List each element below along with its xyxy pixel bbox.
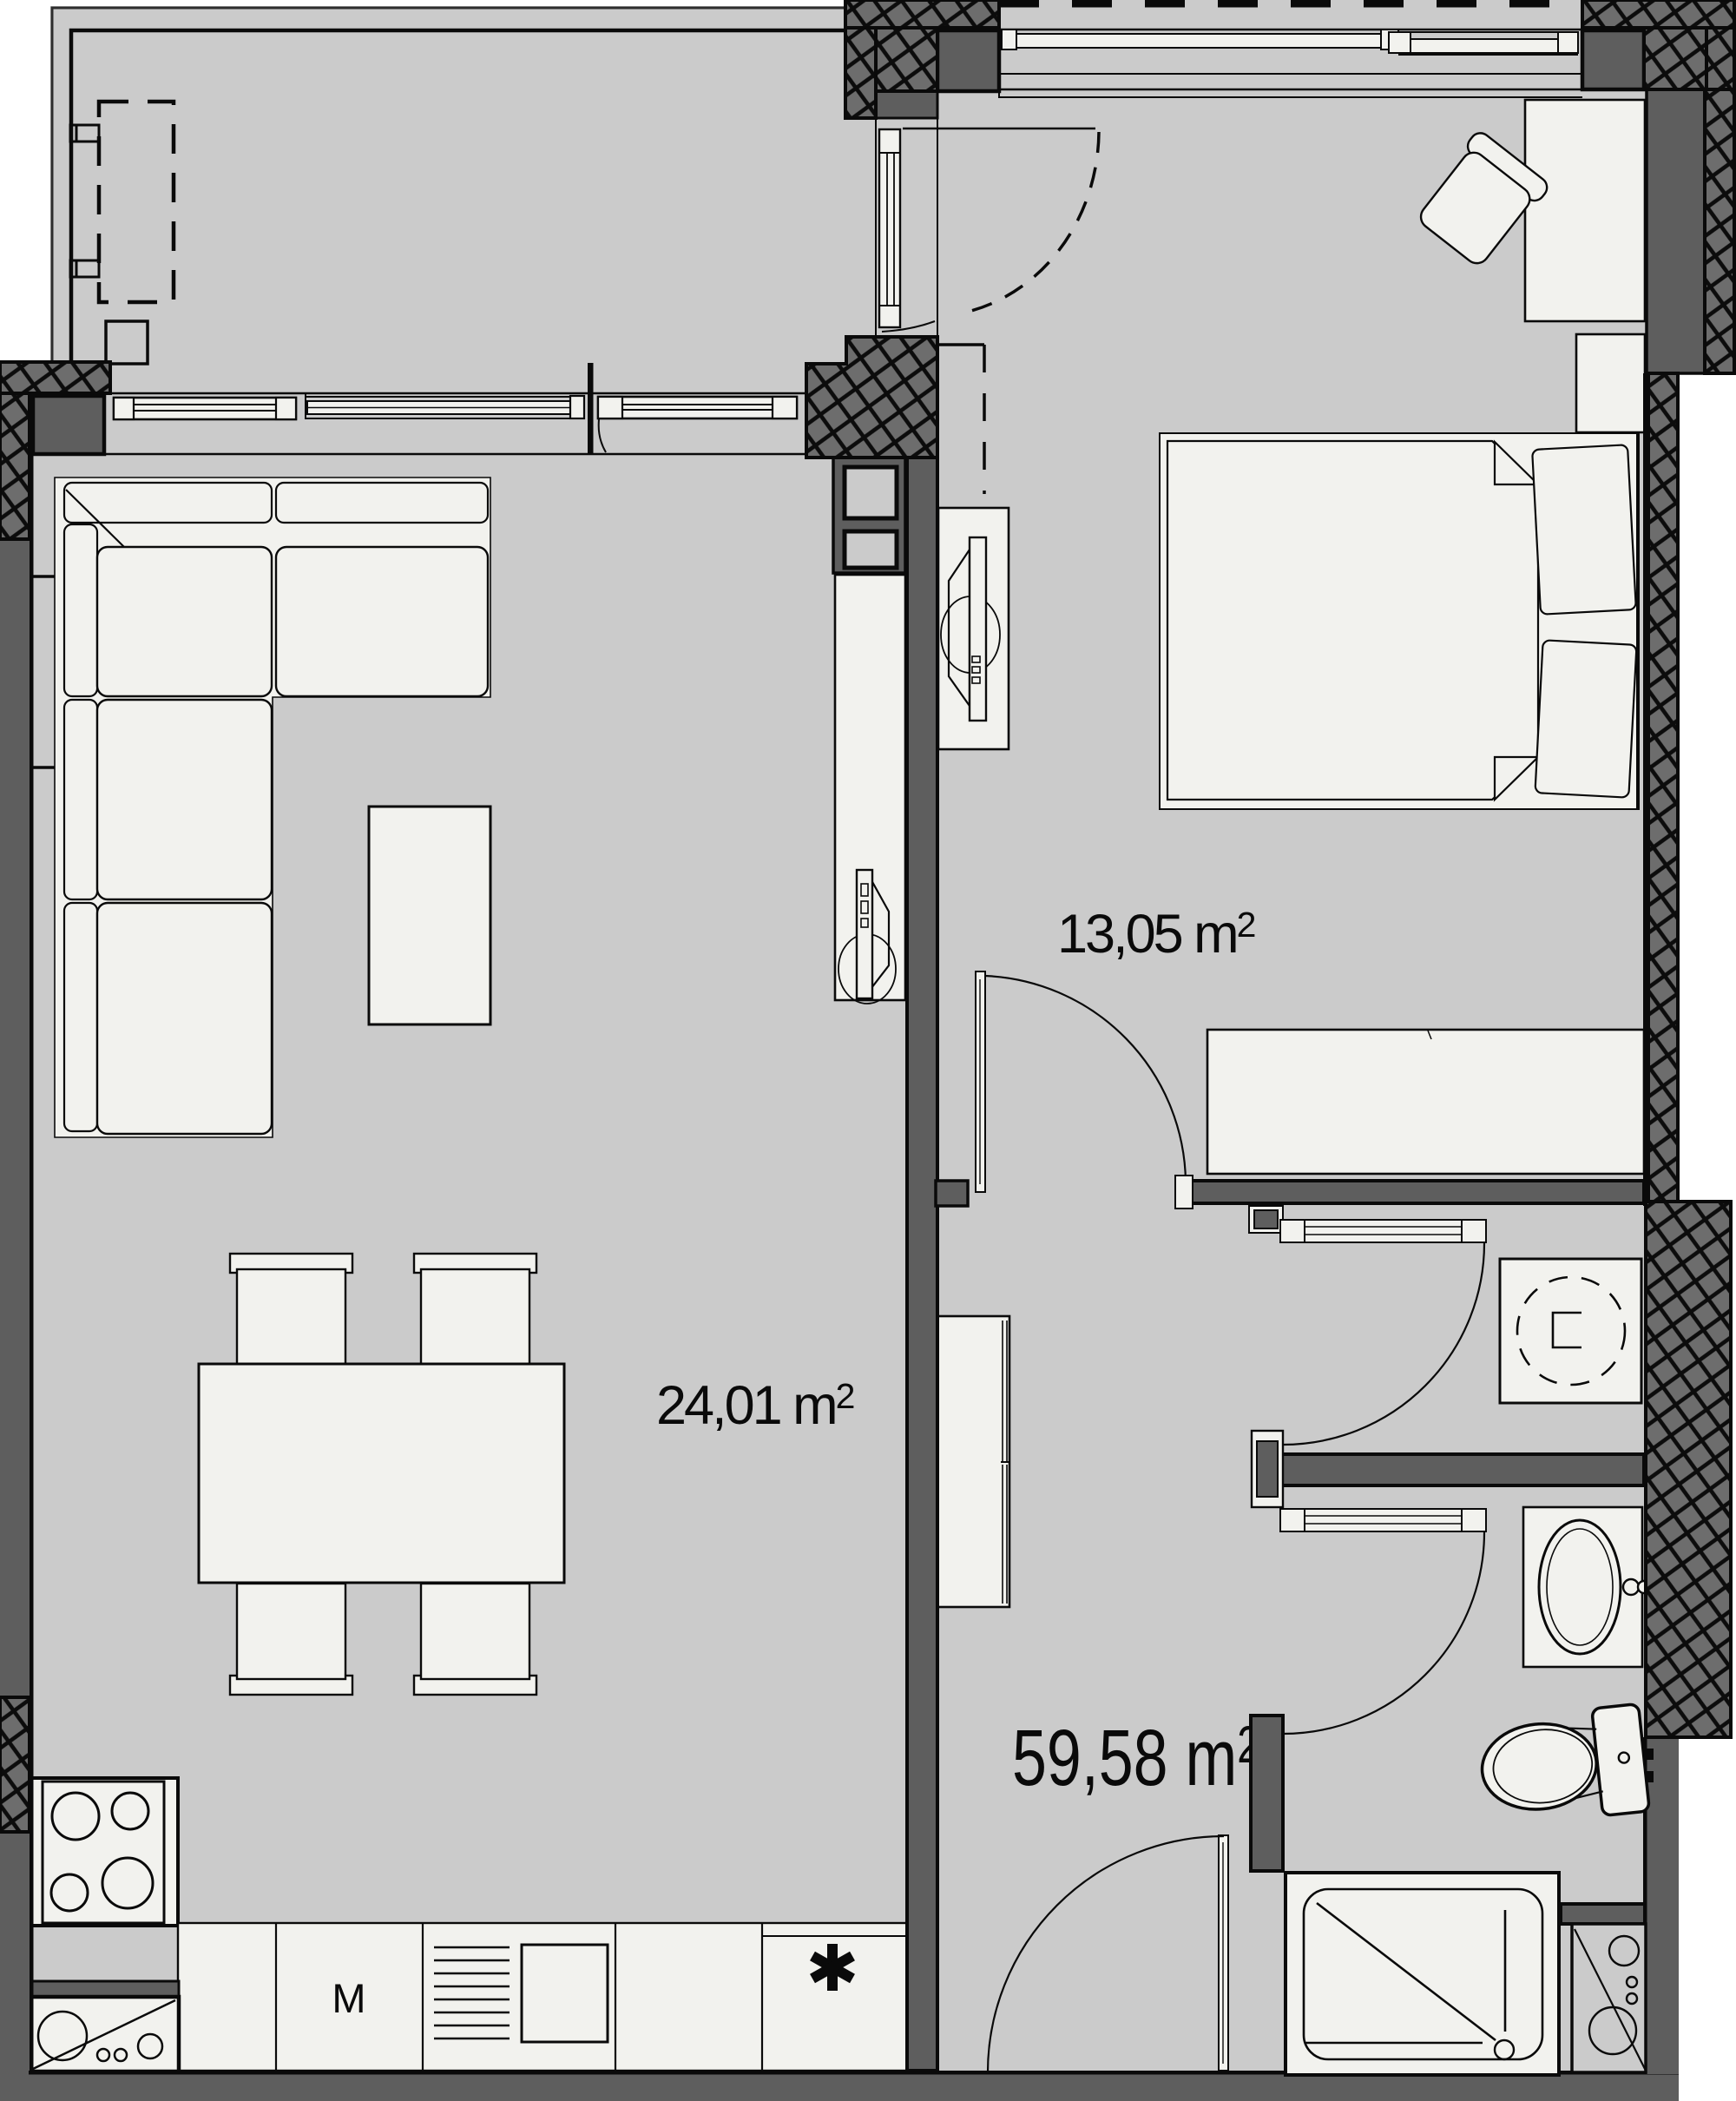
- svg-text:M: M: [332, 1975, 365, 2021]
- svg-text:59,58 m2: 59,58 m2: [1012, 1713, 1259, 1802]
- svg-text:13,05 m2: 13,05 m2: [1057, 904, 1255, 965]
- svg-text:24,01 m2: 24,01 m2: [656, 1375, 854, 1436]
